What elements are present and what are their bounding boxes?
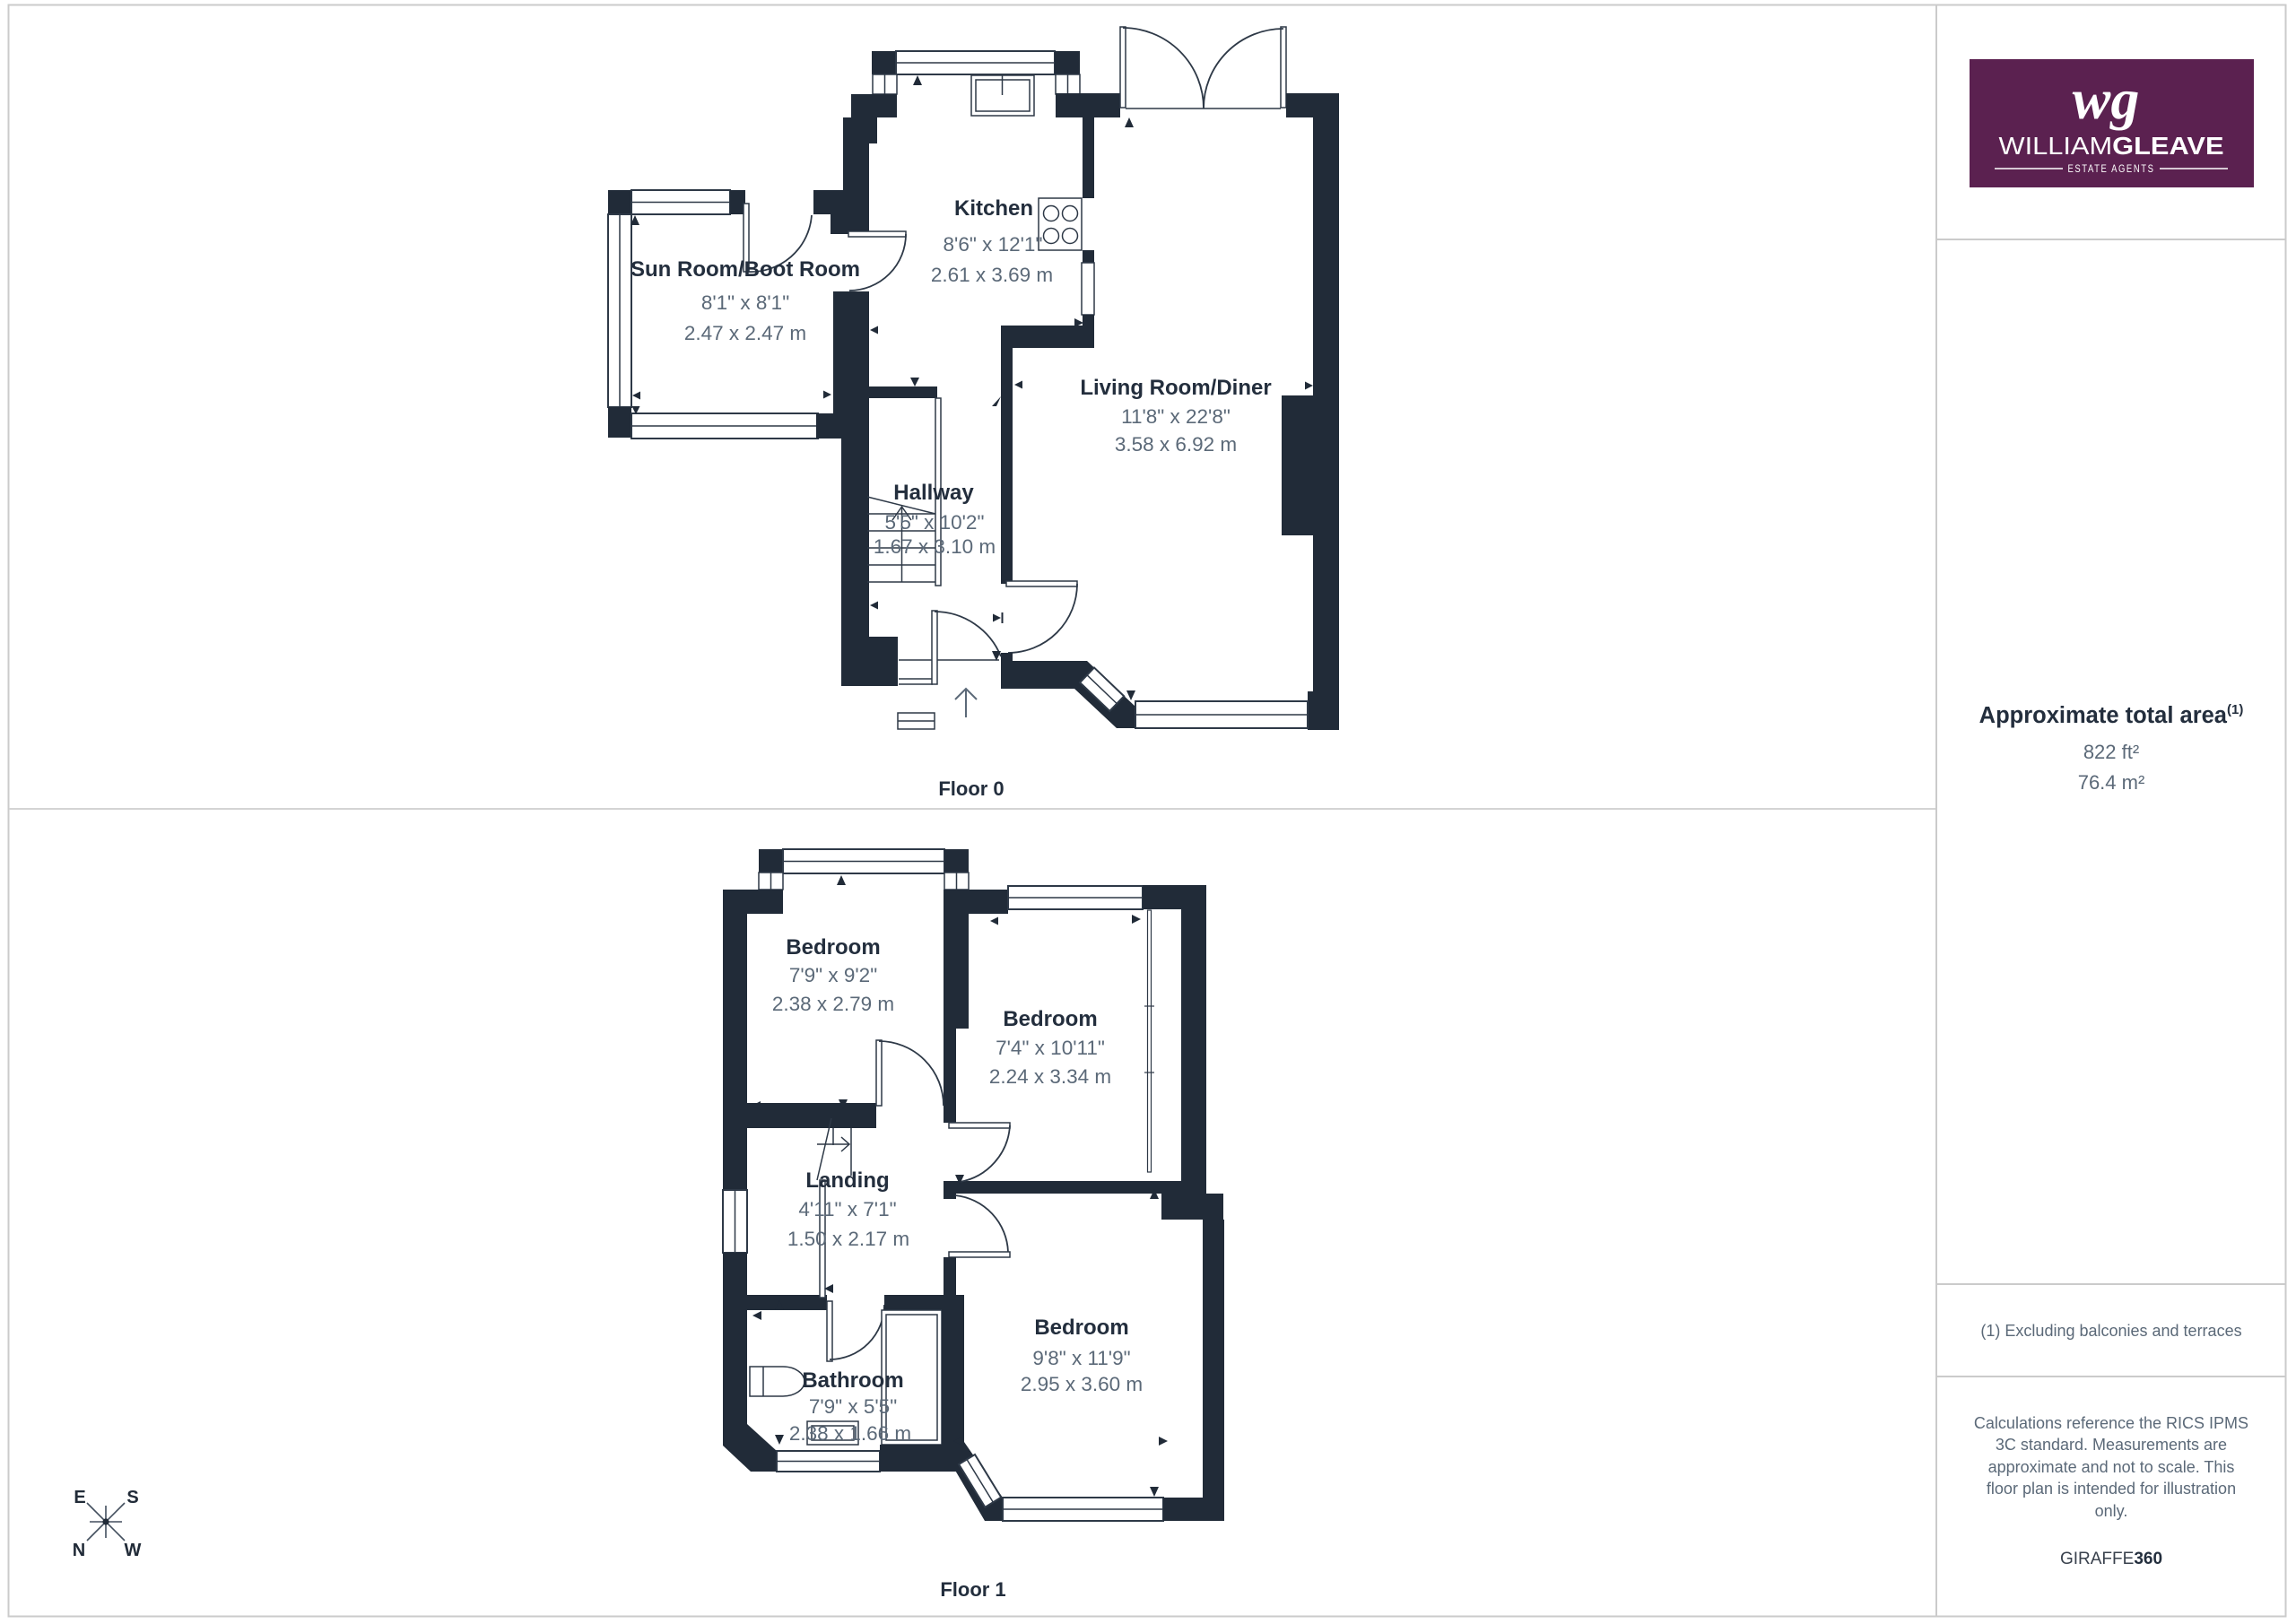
svg-text:Bedroom: Bedroom <box>786 935 880 960</box>
svg-text:(1) Excluding balconies and te: (1) Excluding balconies and terraces <box>1980 1322 2241 1340</box>
svg-text:WILLIAMGLEAVE: WILLIAMGLEAVE <box>1999 132 2224 160</box>
svg-text:1.50 x 2.17 m: 1.50 x 2.17 m <box>787 1228 909 1250</box>
svg-text:1.67 x 3.10 m: 1.67 x 3.10 m <box>874 535 996 558</box>
svg-text:Floor 1: Floor 1 <box>940 1578 1005 1601</box>
svg-text:7'9" x 5'5": 7'9" x 5'5" <box>809 1395 897 1418</box>
svg-text:8'6" x 12'1": 8'6" x 12'1" <box>944 233 1043 256</box>
svg-text:Sun Room/Boot Room: Sun Room/Boot Room <box>631 257 860 282</box>
svg-text:3C standard. Measurements are: 3C standard. Measurements are <box>1996 1436 2227 1454</box>
svg-text:3.58 x 6.92 m: 3.58 x 6.92 m <box>1115 433 1237 456</box>
svg-text:9'8" x 11'9": 9'8" x 11'9" <box>1032 1347 1130 1369</box>
svg-text:7'9" x 9'2": 7'9" x 9'2" <box>789 964 877 986</box>
svg-text:5'5" x 10'2": 5'5" x 10'2" <box>885 511 985 534</box>
svg-text:Hallway: Hallway <box>893 481 974 505</box>
svg-text:76.4 m²: 76.4 m² <box>2078 771 2145 794</box>
svg-text:ESTATE AGENTS: ESTATE AGENTS <box>2068 162 2155 175</box>
svg-text:Floor 0: Floor 0 <box>938 777 1004 800</box>
svg-text:Calculations reference the RIC: Calculations reference the RICS IPMS <box>1974 1414 2248 1432</box>
svg-text:E: E <box>74 1488 85 1507</box>
svg-text:Bedroom: Bedroom <box>1034 1316 1128 1340</box>
svg-text:N: N <box>73 1541 85 1560</box>
svg-text:4'11" x 7'1": 4'11" x 7'1" <box>798 1198 896 1220</box>
svg-text:floor plan is intended for ill: floor plan is intended for illustration <box>1987 1480 2236 1498</box>
svg-text:Bathroom: Bathroom <box>802 1368 903 1393</box>
svg-text:2.38 x 2.79 m: 2.38 x 2.79 m <box>772 993 894 1015</box>
svg-text:S: S <box>126 1488 138 1507</box>
svg-text:Approximate total area(1): Approximate total area(1) <box>1979 702 2244 728</box>
svg-text:2.38 x 1.66 m: 2.38 x 1.66 m <box>789 1422 911 1445</box>
svg-text:Living Room/Diner: Living Room/Diner <box>1080 376 1271 400</box>
svg-text:W: W <box>125 1541 142 1560</box>
svg-text:11'8" x 22'8": 11'8" x 22'8" <box>1121 405 1231 428</box>
svg-text:8'1" x 8'1": 8'1" x 8'1" <box>701 291 789 314</box>
svg-text:2.47 x 2.47 m: 2.47 x 2.47 m <box>684 322 806 344</box>
svg-text:822 ft²: 822 ft² <box>2083 741 2139 763</box>
svg-text:Landing: Landing <box>805 1168 889 1193</box>
svg-text:2.61 x 3.69 m: 2.61 x 3.69 m <box>931 264 1053 286</box>
svg-text:2.24 x 3.34 m: 2.24 x 3.34 m <box>989 1065 1111 1088</box>
svg-text:Kitchen: Kitchen <box>954 196 1033 221</box>
svg-text:Bedroom: Bedroom <box>1003 1007 1097 1031</box>
svg-text:GIRAFFE360: GIRAFFE360 <box>2060 1550 2162 1568</box>
svg-text:approximate and not to scale.: approximate and not to scale. This <box>1988 1458 2235 1476</box>
svg-text:2.95 x 3.60 m: 2.95 x 3.60 m <box>1021 1373 1143 1395</box>
svg-text:wg: wg <box>2073 67 2140 131</box>
svg-text:only.: only. <box>2095 1502 2128 1520</box>
svg-text:7'4" x 10'11": 7'4" x 10'11" <box>996 1037 1105 1059</box>
